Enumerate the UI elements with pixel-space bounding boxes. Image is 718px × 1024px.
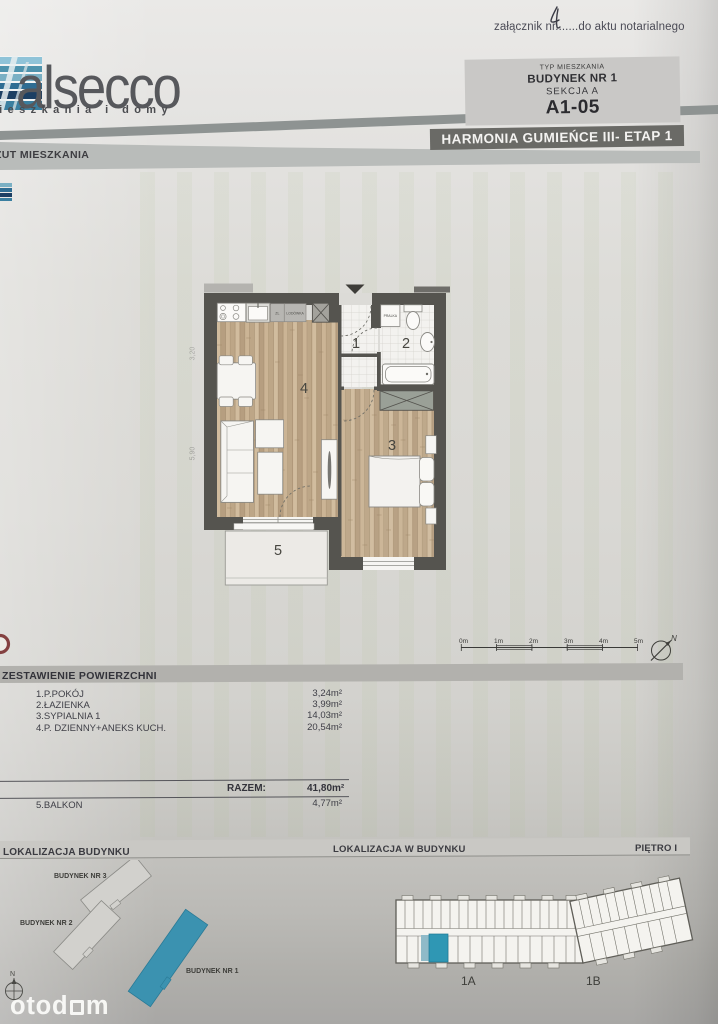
svg-text:4m: 4m: [599, 638, 608, 645]
svg-text:3: 3: [388, 438, 396, 454]
svg-text:ZL: ZL: [275, 312, 279, 316]
svg-text:1m: 1m: [494, 638, 503, 645]
svg-text:2m: 2m: [529, 638, 538, 645]
svg-text:N: N: [671, 634, 677, 643]
svg-text:LODÓWKA: LODÓWKA: [286, 311, 304, 316]
svg-text:2: 2: [402, 336, 410, 352]
svg-text:0m: 0m: [459, 638, 468, 645]
svg-text:5: 5: [274, 543, 282, 559]
svg-text:PRALKA: PRALKA: [384, 314, 398, 318]
svg-text:3m: 3m: [564, 638, 573, 645]
svg-text:5m: 5m: [634, 638, 643, 645]
svg-text:4: 4: [300, 381, 308, 397]
svg-text:1: 1: [352, 336, 360, 352]
svg-text:N: N: [10, 971, 15, 978]
